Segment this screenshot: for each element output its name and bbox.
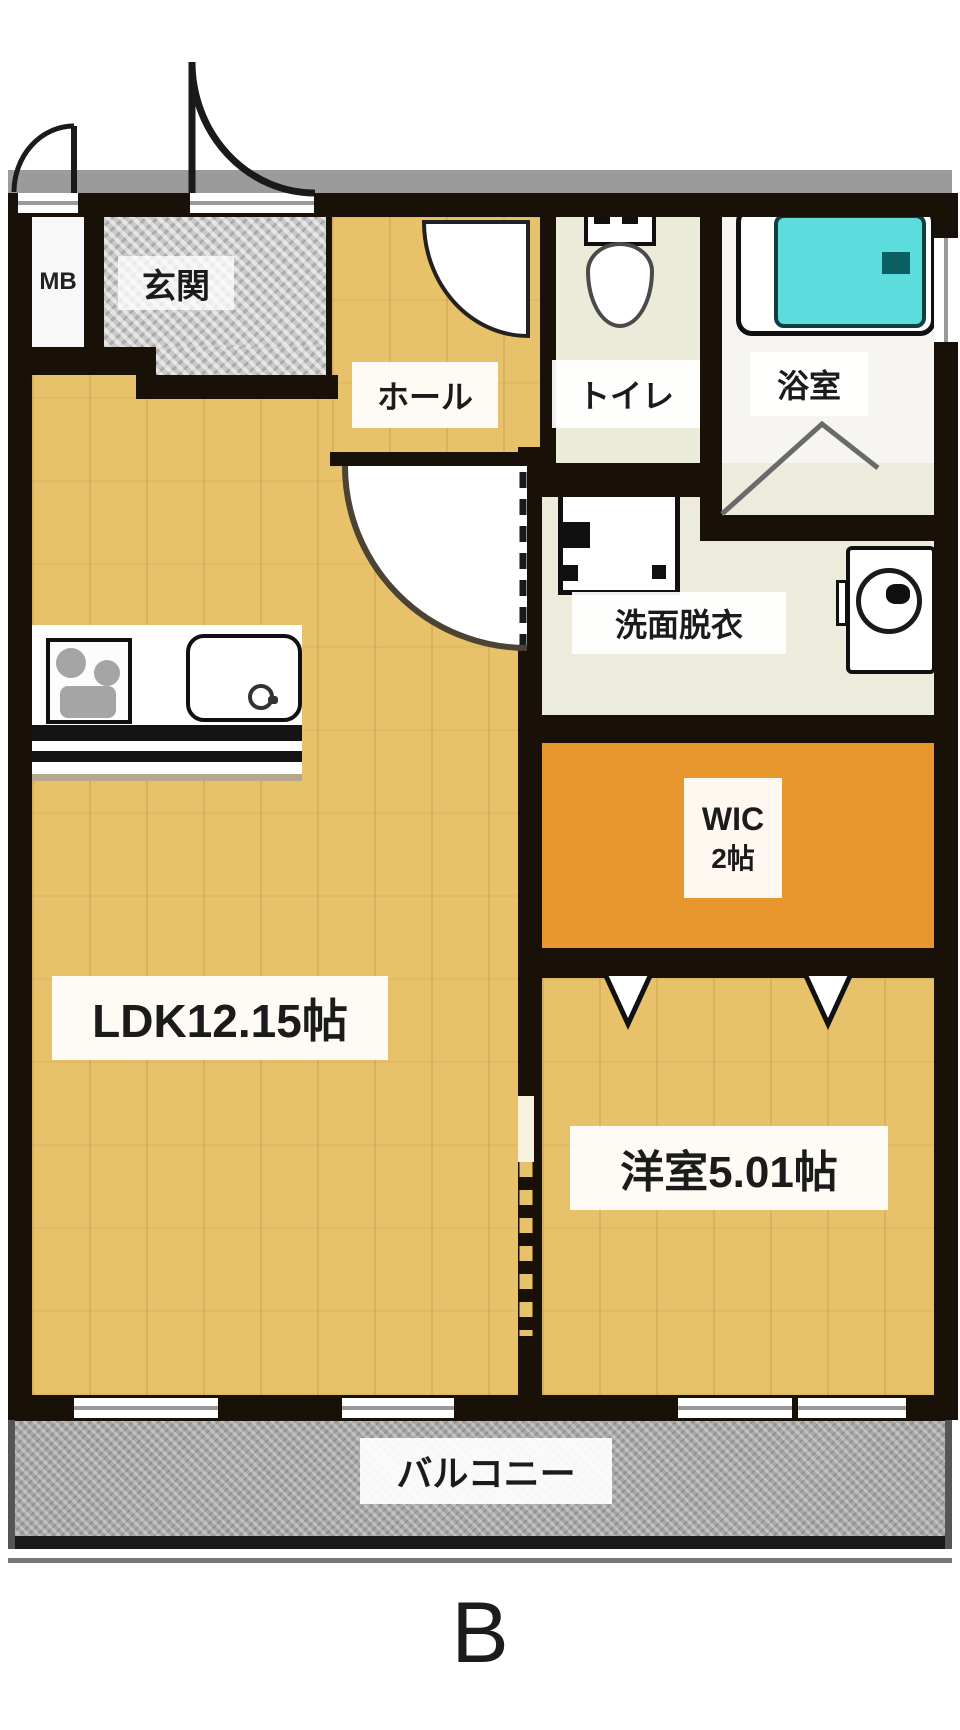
counter-front-band-2 xyxy=(32,741,302,751)
ldk-label: LDK12.15帖 xyxy=(52,976,388,1060)
wall-mb-bottom xyxy=(8,347,156,375)
balcony-rail-left xyxy=(8,1420,15,1549)
washroom-label: 洗面脱衣 xyxy=(572,592,786,654)
kitchen-sink xyxy=(186,634,302,722)
bath-label: 浴室 xyxy=(750,352,868,416)
stove-burner-1 xyxy=(56,648,86,678)
wall-right xyxy=(934,193,958,1420)
wic-label: WIC 2帖 xyxy=(684,778,782,898)
wall-mb-right xyxy=(84,217,104,349)
washing-machine-corner-bl xyxy=(562,565,578,581)
wall-bath-bottom xyxy=(700,515,934,541)
washing-machine-hinge xyxy=(560,522,590,548)
hall-label: ホール xyxy=(352,362,498,428)
ldk-door-opening-line xyxy=(344,466,526,472)
toilet-label: トイレ xyxy=(552,360,700,428)
balcony-rail-dark xyxy=(8,1536,952,1549)
wall-wic-top xyxy=(518,715,958,743)
balcony-rail-right xyxy=(945,1420,952,1549)
room-entrance-step xyxy=(148,347,326,377)
entrance-label: 玄関 xyxy=(118,256,234,310)
wall-hall-toilet xyxy=(540,217,556,471)
wall-entrance-hall-divider xyxy=(326,217,332,381)
balcony-rail-thin xyxy=(8,1558,952,1563)
counter-front-band-1 xyxy=(32,725,302,741)
balcony-label: バルコニー xyxy=(360,1438,612,1504)
wall-wic-bottom xyxy=(518,948,958,978)
stove-burner-2 xyxy=(94,660,120,686)
bedroom-doorway-gap xyxy=(518,1096,534,1162)
stove-burner-3 xyxy=(60,686,116,718)
counter-front-band-3 xyxy=(32,751,302,762)
wall-toilet-bath xyxy=(700,193,722,539)
kitchen-faucet-knob xyxy=(268,696,278,704)
mb-door-opening xyxy=(18,193,78,213)
floorplan: MB 玄関 ホール トイレ 浴室 洗面脱衣 WIC 2帖 LDK12.15帖 洋… xyxy=(0,0,960,1730)
wall-toilet-bottom xyxy=(540,463,702,497)
washbasin-faucet xyxy=(886,584,910,604)
counter-front-band-4 xyxy=(32,762,302,774)
wic-size: 2帖 xyxy=(711,841,755,877)
unit-label: B xyxy=(0,1578,960,1688)
wic-name: WIC xyxy=(702,799,764,841)
bedroom-label: 洋室5.01帖 xyxy=(570,1126,888,1210)
window-bath-right xyxy=(934,238,958,342)
window-ldk-balcony-2 xyxy=(342,1398,454,1418)
wall-top xyxy=(8,193,952,217)
wall-left xyxy=(8,193,32,1420)
room-hall xyxy=(332,217,540,467)
counter-front-band-5 xyxy=(32,774,302,781)
entrance-door-opening xyxy=(190,193,314,213)
wall-hall-bottom-header xyxy=(330,452,542,466)
washing-machine-corner-br xyxy=(652,565,666,579)
balcony-rail-white xyxy=(8,1549,952,1558)
window-bedroom-balcony-1 xyxy=(678,1398,792,1418)
mb-label: MB xyxy=(34,262,82,302)
window-ldk-balcony-1 xyxy=(74,1398,218,1418)
wall-entrance-bottom xyxy=(136,375,338,399)
washbasin-tab xyxy=(836,580,848,626)
bathtub-drain xyxy=(882,252,910,274)
window-bedroom-balcony-2 xyxy=(798,1398,906,1418)
room-ldk xyxy=(32,368,518,1395)
top-wall-shadow xyxy=(8,170,952,194)
wall-ldk-east xyxy=(518,447,542,1395)
